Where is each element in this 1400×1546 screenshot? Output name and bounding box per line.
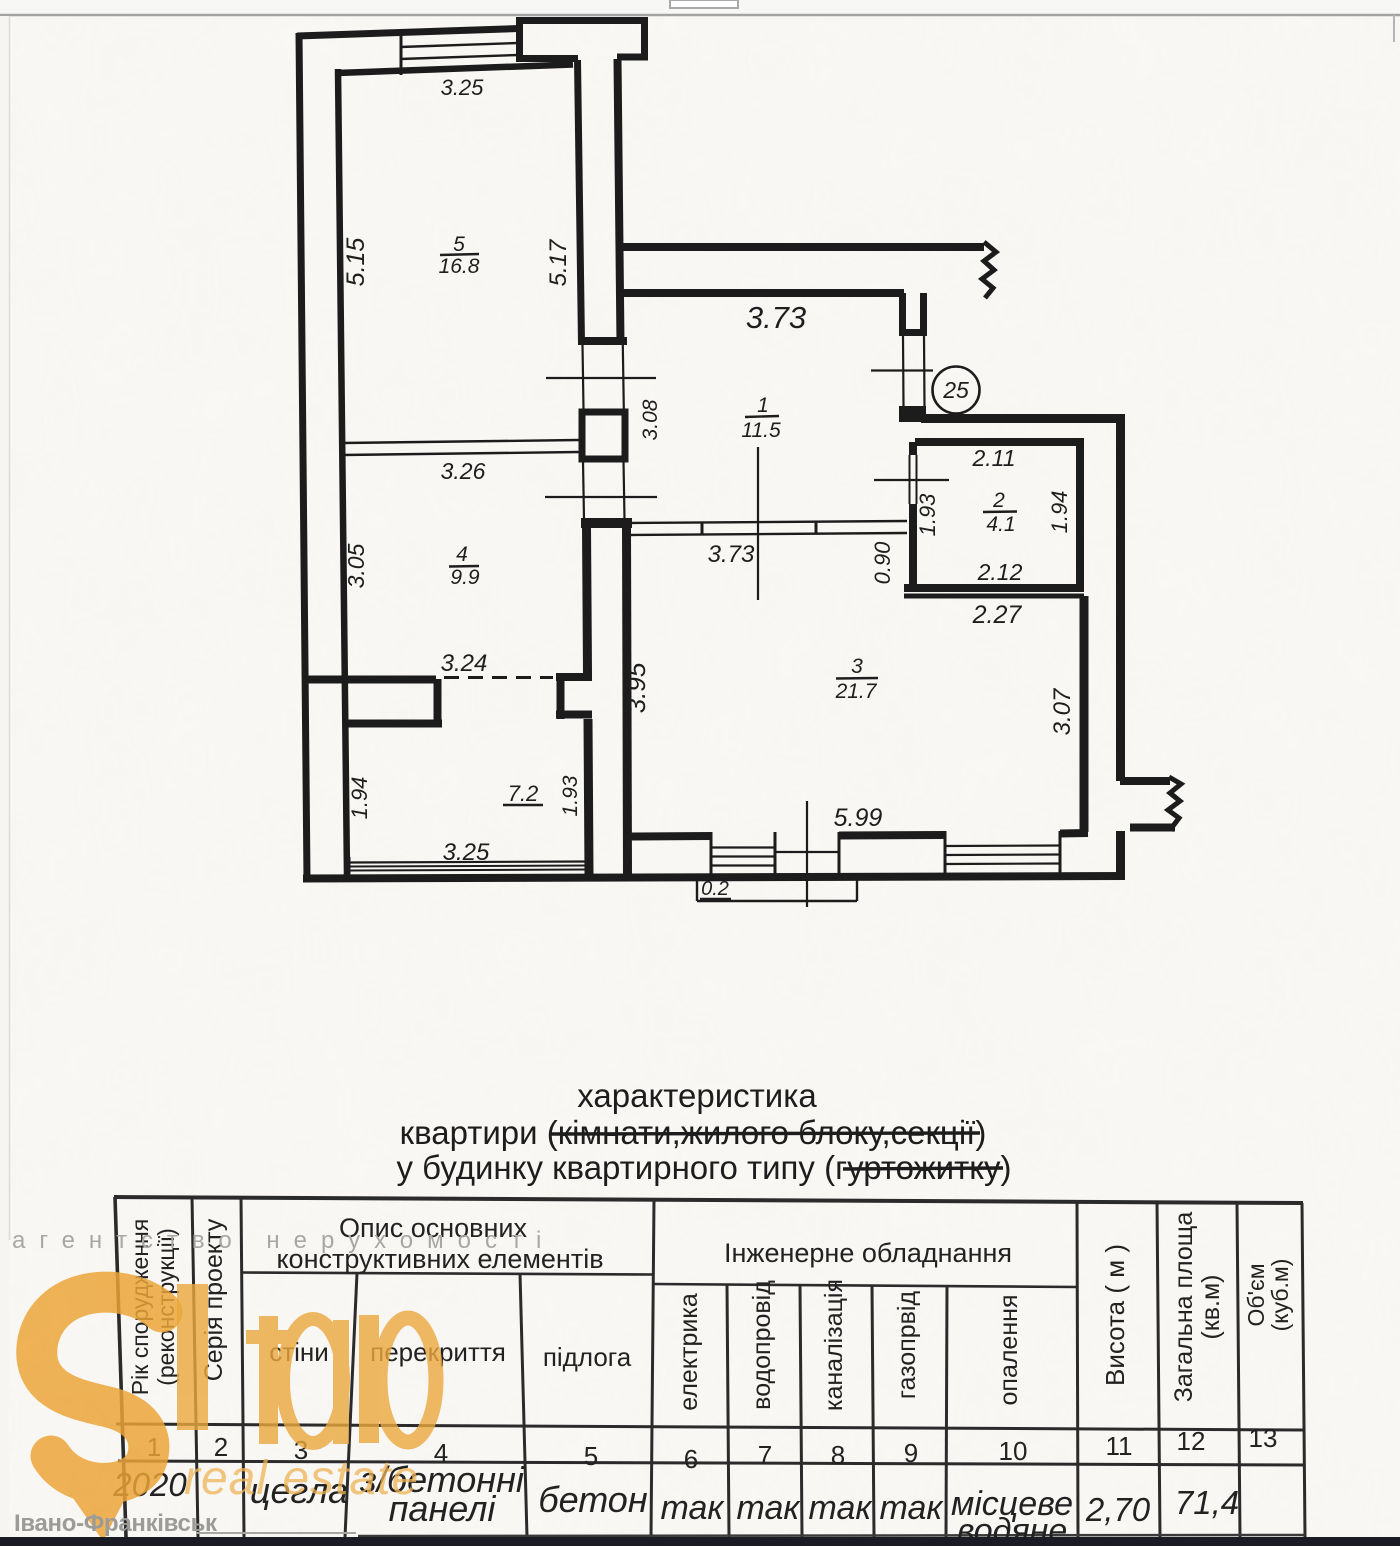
svg-text:8: 8 <box>831 1440 845 1470</box>
svg-text:водопровід: водопровід <box>748 1280 776 1410</box>
svg-text:11: 11 <box>1106 1431 1133 1461</box>
svg-text:7.2: 7.2 <box>508 781 539 806</box>
svg-text:13: 13 <box>1249 1423 1278 1453</box>
svg-text:Івано-Франківськ: Івано-Франківськ <box>14 1510 218 1537</box>
svg-text:25: 25 <box>942 377 969 403</box>
svg-text:3.25: 3.25 <box>443 839 490 866</box>
svg-text:0.90: 0.90 <box>870 541 895 585</box>
svg-text:1.93: 1.93 <box>915 493 940 537</box>
svg-text:real estate: real estate <box>184 1452 419 1505</box>
svg-text:опалення: опалення <box>995 1295 1023 1406</box>
svg-text:7: 7 <box>758 1440 772 1470</box>
svg-text:21.7: 21.7 <box>835 680 878 703</box>
svg-text:10: 10 <box>999 1436 1028 1466</box>
svg-text:5: 5 <box>453 233 465 256</box>
svg-text:2: 2 <box>992 489 1005 512</box>
svg-text:5.99: 5.99 <box>834 804 883 832</box>
svg-text:1.94: 1.94 <box>347 777 372 820</box>
svg-text:3.07: 3.07 <box>1049 687 1076 735</box>
svg-text:5: 5 <box>584 1441 598 1471</box>
svg-text:5.17: 5.17 <box>545 238 572 286</box>
svg-text:так: так <box>809 1489 874 1527</box>
svg-text:9.9: 9.9 <box>450 566 480 589</box>
svg-text:3.95: 3.95 <box>621 662 651 713</box>
svg-text:характеристика: характеристика <box>577 1077 817 1114</box>
svg-text:так: так <box>737 1489 802 1527</box>
svg-text:3.25: 3.25 <box>441 75 485 100</box>
svg-text:(куб.м): (куб.м) <box>1267 1259 1293 1332</box>
svg-text:так: так <box>661 1489 726 1527</box>
svg-text:1: 1 <box>757 394 769 417</box>
svg-text:5.15: 5.15 <box>342 238 370 287</box>
svg-text:11.5: 11.5 <box>741 419 781 442</box>
svg-text:12: 12 <box>1177 1426 1206 1456</box>
svg-text:газопрвід: газопрвід <box>893 1291 921 1400</box>
svg-text:1.93: 1.93 <box>559 775 582 816</box>
svg-text:2.11: 2.11 <box>971 445 1015 471</box>
svg-text:3.26: 3.26 <box>441 458 486 484</box>
svg-text:каналізація: каналізація <box>820 1279 848 1411</box>
svg-text:(кв.м): (кв.м) <box>1197 1274 1225 1339</box>
svg-text:Об'єм: Об'єм <box>1243 1263 1269 1326</box>
svg-text:3.08: 3.08 <box>639 399 662 440</box>
svg-text:16.8: 16.8 <box>439 255 480 278</box>
svg-text:2,70: 2,70 <box>1085 1491 1151 1528</box>
svg-text:3.05: 3.05 <box>343 543 369 588</box>
svg-text:Загальна площа: Загальна площа <box>1170 1212 1198 1403</box>
svg-text:6: 6 <box>684 1444 698 1474</box>
svg-text:3.73: 3.73 <box>708 541 755 568</box>
svg-text:Інженерне обладнання: Інженерне обладнання <box>724 1238 1012 1268</box>
svg-text:2.12: 2.12 <box>977 559 1023 585</box>
svg-text:так: так <box>880 1489 945 1527</box>
svg-text:9: 9 <box>904 1438 918 1468</box>
svg-text:1.94: 1.94 <box>1047 491 1072 534</box>
svg-text:4.1: 4.1 <box>986 513 1015 536</box>
svg-text:3.73: 3.73 <box>746 300 806 335</box>
svg-text:3.24: 3.24 <box>441 650 488 677</box>
svg-text:0.2: 0.2 <box>701 878 729 900</box>
svg-text:агентство нерухомості: агентство нерухомості <box>12 1227 555 1254</box>
svg-text:бетон: бетон <box>538 1479 647 1520</box>
svg-text:електрика: електрика <box>675 1293 703 1411</box>
svg-text:підлога: підлога <box>543 1342 632 1372</box>
svg-text:2.27: 2.27 <box>972 601 1023 629</box>
svg-text:71,4: 71,4 <box>1175 1484 1239 1521</box>
svg-text:4: 4 <box>456 543 468 566</box>
svg-text:Висота ( м ): Висота ( м ) <box>1100 1244 1130 1386</box>
svg-text:3: 3 <box>851 655 863 678</box>
